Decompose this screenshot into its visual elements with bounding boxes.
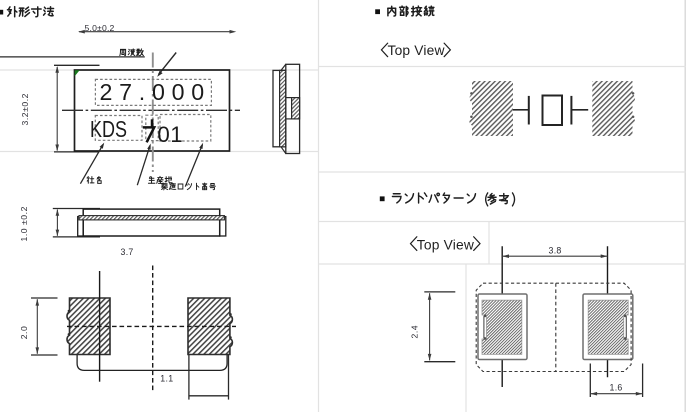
svg-text:Top View: Top View	[417, 237, 474, 252]
svg-text:2.0: 2.0	[19, 326, 29, 340]
svg-text:3.2±0.2: 3.2±0.2	[20, 93, 30, 125]
svg-text:27.000: 27.000	[100, 79, 211, 105]
svg-text:1.1: 1.1	[160, 373, 173, 383]
svg-text:1.6: 1.6	[610, 382, 623, 392]
svg-text:Top View: Top View	[388, 43, 445, 58]
svg-text:3.7: 3.7	[121, 247, 134, 257]
svg-text:3.8: 3.8	[549, 245, 562, 255]
svg-text:1.0 ±0.2: 1.0 ±0.2	[19, 206, 29, 241]
svg-text:KDS: KDS	[90, 116, 127, 142]
svg-text:2.4: 2.4	[410, 325, 420, 339]
svg-text:01: 01	[157, 122, 183, 147]
